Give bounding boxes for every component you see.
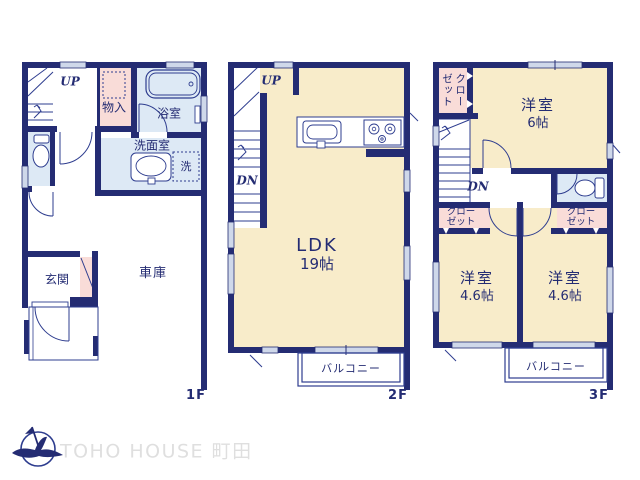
brand-logo-text: TOHO HOUSE 町田 [60,437,253,464]
toilet-3f [575,178,604,198]
toilet-tank [34,135,49,143]
faucet [317,141,325,148]
entrance-door-arc [35,307,69,341]
room-label-ldk-size: 19帖 [300,256,334,273]
room-label-bathroom: 浴室 [157,107,181,120]
hall-door-arc [60,132,92,164]
room-label-bedroom-left-size: 4.6帖 [460,290,494,304]
floor-label-1f: 1F [186,389,206,403]
room-label-bedroom6-size: 6帖 [527,117,548,131]
stove [364,120,401,145]
window-swing-tick [613,145,620,153]
balcony-label-2f: バルコニー [321,363,381,375]
floor-plan-page: UP 物入 浴室 洗面室 洗 玄関 車庫 1F UP DN LDK 19帖 バル… [0,0,640,480]
entrance-threshold [32,302,68,307]
stairwell-fill-2f [234,68,260,228]
porch [29,307,98,360]
bath-window [195,106,200,123]
closet-label-main: クローゼット [440,72,466,108]
closet-label-left: クローゼット [444,208,478,229]
kitchen-counter [297,117,404,148]
wash-basin-counter [131,153,171,181]
room-label-garage: 車庫 [139,267,167,281]
staircase-3f [437,119,470,205]
room-label-entrance: 玄関 [45,273,69,286]
stairs-up-label-1f: UP [60,75,80,88]
staircase-1f [28,68,53,120]
window-swing-tick [250,355,262,367]
stairs-down-label-3f: DN [467,180,488,193]
room-label-washer: 洗 [181,161,192,173]
toilet-bowl [33,145,49,167]
floor-label-2f: 2F [388,389,408,403]
room-label-ldk: LDK [296,236,338,256]
toilet-bowl [575,180,595,196]
window-swing-tick [445,350,456,361]
room-label-storage: 物入 [102,101,126,114]
floor-plan-2f [228,62,418,390]
room-label-washroom: 洗面室 [134,139,170,152]
floor-label-3f: 3F [589,389,609,403]
stairs-down-label-2f: DN [236,174,257,187]
room-label-bedroom-right: 洋室 [548,270,582,287]
window-swing-tick [410,113,418,121]
compass-icon [12,427,63,466]
storage-room-fill [100,68,131,126]
north-arrow-head [25,427,33,434]
toilet-tank [595,178,604,198]
balcony-label-3f: バルコニー [526,361,586,373]
room-label-bedroom6: 洋室 [521,97,555,114]
room-label-bedroom-right-size: 4.6帖 [548,290,582,304]
stairs-up-label-2f: UP [261,74,281,87]
toilet-door-arc [29,192,53,216]
closet-label-right: クローゼット [564,208,598,229]
bathtub [146,70,200,98]
kitchen-sink [303,121,341,143]
room-label-bedroom-left: 洋室 [460,270,494,287]
